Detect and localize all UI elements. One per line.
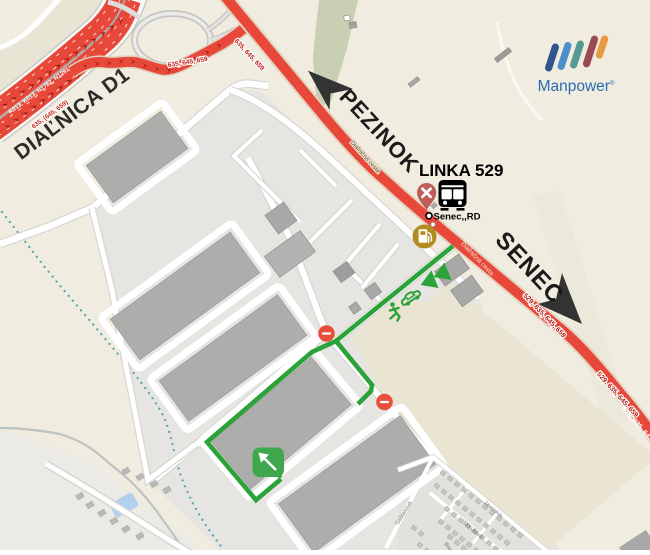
svg-text:LINKA 529: LINKA 529 (419, 161, 503, 180)
svg-text:Manpower®: Manpower® (538, 78, 615, 95)
svg-text:Senec,,RD: Senec,,RD (434, 212, 481, 223)
